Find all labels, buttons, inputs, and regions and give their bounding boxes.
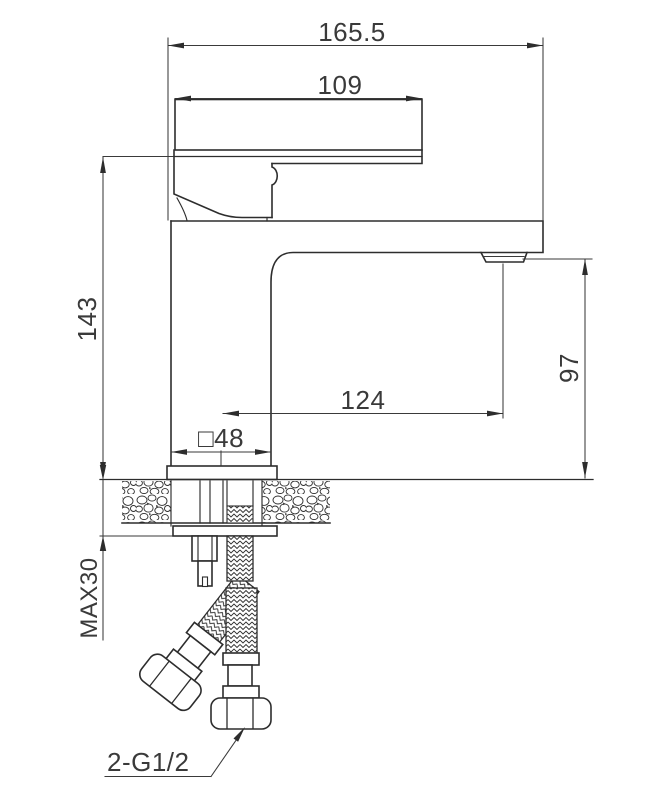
handle-base-detail-curve <box>177 198 187 221</box>
dim-handle-length-label: 109 <box>318 70 363 100</box>
handle-lever <box>175 100 422 151</box>
handle-base <box>174 150 272 218</box>
leader-line <box>211 736 239 777</box>
dimension-handle-length: 109 <box>175 70 422 100</box>
dim-base-square-label: □48 <box>198 423 244 453</box>
counter-hatch-right <box>262 481 330 523</box>
arrowhead <box>100 536 106 551</box>
base-plate <box>167 466 277 480</box>
stud-slot <box>203 577 208 587</box>
technical-drawing-page: 165.5 109 143 97 124 □48 MAX30 2-G1/2 <box>0 0 653 800</box>
aerator <box>481 253 527 263</box>
countertop-section <box>100 480 593 527</box>
hose-thread-label: 2-G1/2 <box>107 747 190 777</box>
dim-max-thickness-label: MAX30 <box>76 557 103 638</box>
dimension-base-square: □48 <box>171 423 271 453</box>
dim-total-width-label: 165.5 <box>318 17 386 47</box>
faucet-outline <box>103 100 543 480</box>
spout-top-and-tip <box>171 221 543 253</box>
spout-underside-fillet <box>271 253 481 467</box>
faucet-drawing-canvas: 165.5 109 143 97 124 □48 MAX30 2-G1/2 <box>0 0 653 800</box>
annotation-hose-thread: 2-G1/2 <box>105 727 245 777</box>
dimension-spout-reach: 124 <box>223 264 503 418</box>
hose-hex-nut <box>211 698 271 729</box>
hose-channel-lines <box>227 481 253 506</box>
dimension-height-above-counter: 143 <box>72 157 103 478</box>
arrowhead <box>100 465 106 480</box>
counter-hatch-left <box>122 481 171 523</box>
dim-spout-reach-label: 124 <box>341 385 386 415</box>
dimension-spout-height: 97 <box>523 259 592 478</box>
hose-collar <box>223 653 259 665</box>
dim-spout-height-label: 97 <box>554 353 584 383</box>
mounting-nut <box>192 536 217 561</box>
handle-neck <box>272 164 277 218</box>
hose-braid-in-counter <box>227 506 253 523</box>
hose-tube <box>228 665 252 686</box>
mounting-washer-flange <box>173 526 277 536</box>
hose-braid <box>227 536 253 581</box>
mounting-hardware <box>173 526 277 587</box>
hose-collar <box>223 686 259 698</box>
dim-height-label: 143 <box>72 297 102 342</box>
hose-braid <box>226 588 257 654</box>
